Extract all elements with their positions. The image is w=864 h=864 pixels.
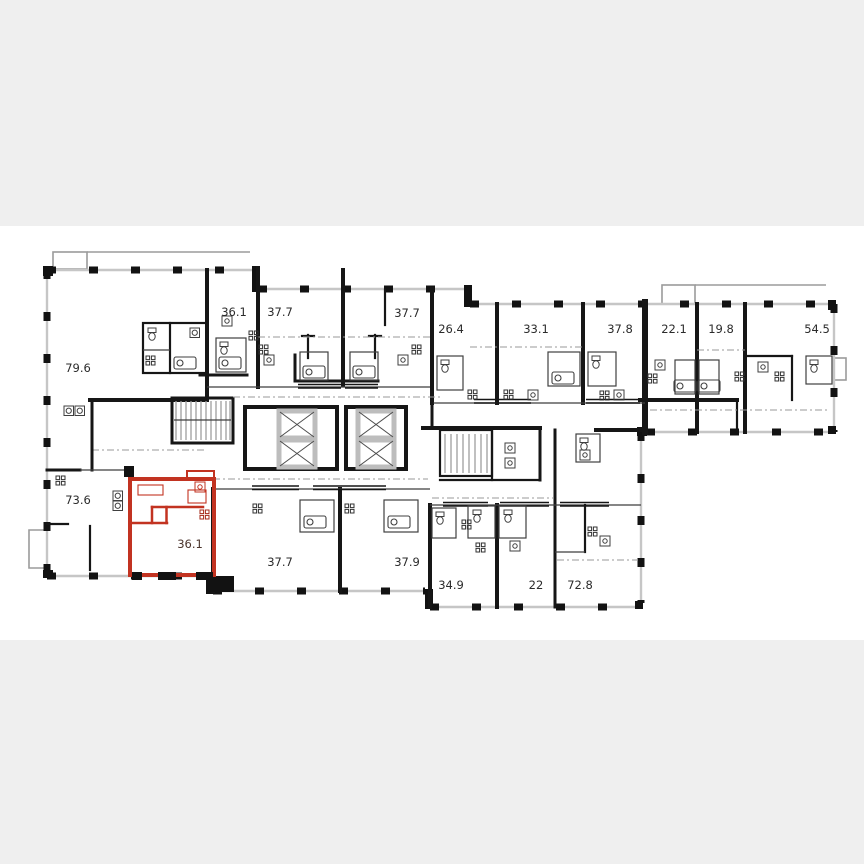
top-band bbox=[0, 0, 864, 226]
elevator-icon bbox=[358, 411, 394, 438]
highlighted-unit[interactable] bbox=[130, 471, 214, 580]
floor-plan-page: 79.6 36.1 37.7 37.7 26.4 33.1 37.8 22.1 … bbox=[0, 0, 864, 864]
elevator-icon bbox=[279, 411, 315, 438]
unit-area-labels: 79.6 36.1 37.7 37.7 26.4 33.1 37.8 22.1 … bbox=[65, 305, 830, 592]
corridor-lines bbox=[92, 397, 553, 498]
elevator-icon bbox=[358, 440, 394, 467]
unit-area-label-37-9: 37.9 bbox=[394, 555, 420, 569]
bottom-band bbox=[0, 640, 864, 864]
unit-area-label-54-5: 54.5 bbox=[804, 322, 830, 336]
wing-units-fixtures bbox=[648, 356, 832, 394]
unit-area-label-22-1: 22.1 bbox=[661, 322, 687, 336]
unit-area-label-36-1-top: 36.1 bbox=[221, 305, 247, 319]
unit-area-label-37-7-bottom: 37.7 bbox=[267, 555, 293, 569]
top-units-fixtures bbox=[216, 316, 421, 380]
unit-area-label-37-7-b: 37.7 bbox=[394, 306, 420, 320]
unit-area-label-36-1-highlighted: 36.1 bbox=[177, 537, 203, 551]
stairwell-right bbox=[423, 403, 540, 480]
unit-area-label-79-6: 79.6 bbox=[65, 361, 91, 375]
unit-area-label-19-8: 19.8 bbox=[708, 322, 734, 336]
unit-area-label-73-6: 73.6 bbox=[65, 493, 91, 507]
elevator-icon bbox=[279, 440, 315, 467]
elevator-core-left bbox=[245, 407, 337, 469]
highlighted-unit-fill bbox=[130, 479, 214, 575]
unit-area-label-33-1: 33.1 bbox=[523, 322, 549, 336]
unit-area-label-26-4: 26.4 bbox=[438, 322, 464, 336]
unit-area-label-37-7-a: 37.7 bbox=[267, 305, 293, 319]
unit-area-label-34-9: 34.9 bbox=[438, 578, 464, 592]
stairwell-left bbox=[172, 398, 233, 443]
elevator-core-right bbox=[346, 407, 406, 469]
unit-area-label-72-8: 72.8 bbox=[567, 578, 593, 592]
floor-plan-svg: 79.6 36.1 37.7 37.7 26.4 33.1 37.8 22.1 … bbox=[0, 0, 864, 864]
center-units-fixtures bbox=[437, 352, 624, 400]
unit-area-label-37-8: 37.8 bbox=[607, 322, 633, 336]
unit-area-label-22: 22 bbox=[529, 578, 544, 592]
